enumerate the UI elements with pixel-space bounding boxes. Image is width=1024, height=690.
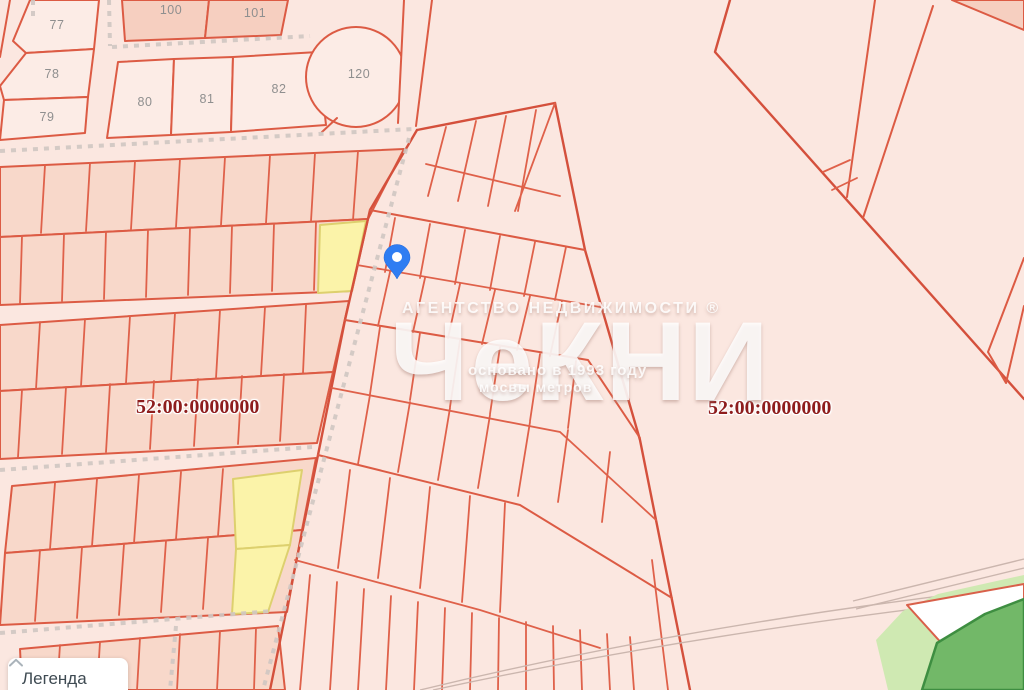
legend-label: Легенда — [22, 669, 87, 689]
legend-button[interactable]: Легенда — [8, 658, 128, 690]
parcel-number-100: 100 — [160, 3, 182, 17]
watermark-founded-line: основано в 1993 году — [468, 362, 647, 379]
watermark-tagline: мосвы метров — [479, 379, 592, 395]
parcel-number-101: 101 — [244, 6, 266, 20]
cadastral-label-left: 52:00:0000000 — [136, 396, 259, 419]
chevron-up-icon — [8, 658, 24, 667]
parcel-number-120: 120 — [348, 67, 370, 81]
parcel-number-79: 79 — [40, 110, 55, 124]
cadastral-map[interactable]: 77 78 79 80 81 82 100 101 120 52:00:0000… — [0, 0, 1024, 690]
parcel-number-82: 82 — [272, 82, 287, 96]
parcel-number-78: 78 — [45, 67, 60, 81]
highlighted-parcel — [233, 470, 302, 549]
parcel-number-80: 80 — [138, 95, 153, 109]
parcel-number-77: 77 — [50, 18, 65, 32]
parcel-number-81: 81 — [200, 92, 215, 106]
